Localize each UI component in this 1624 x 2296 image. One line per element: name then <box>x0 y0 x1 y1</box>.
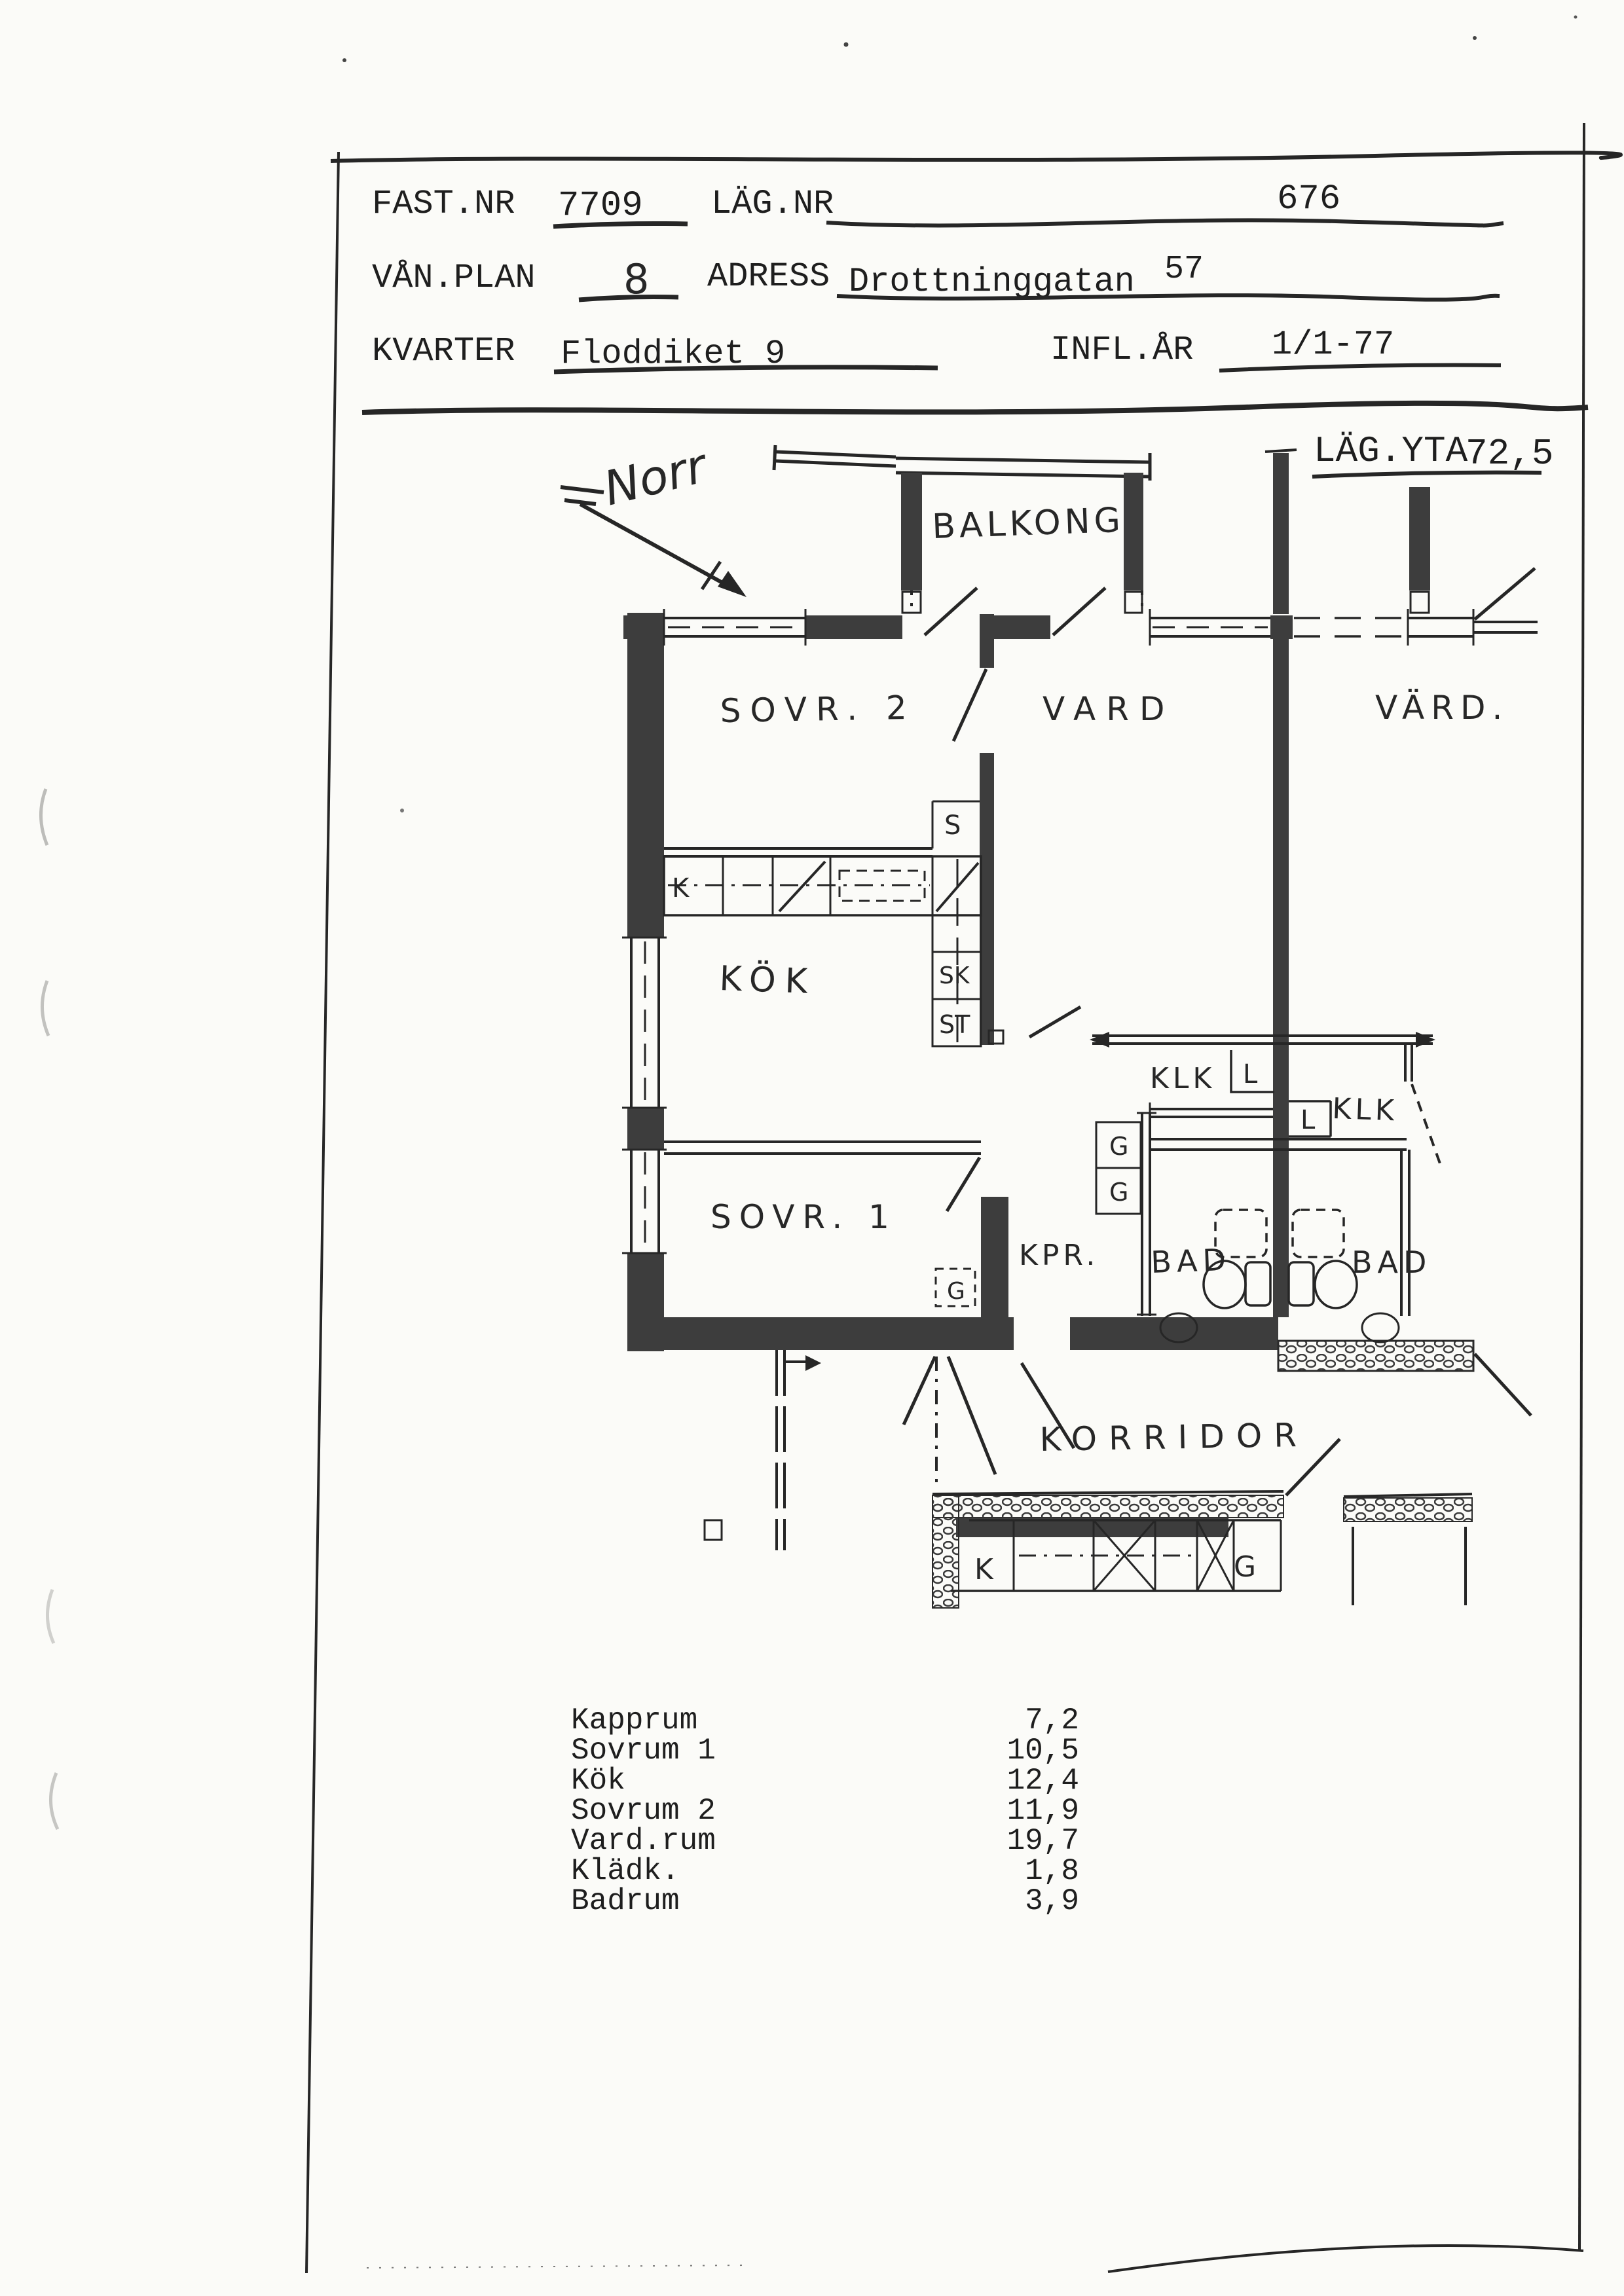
table-row-label: Badrum <box>571 1884 680 1918</box>
area-table: Kapprum 7,2 Sovrum 1 10,5 Kök 12,4 Sovru… <box>571 1704 1079 1918</box>
scanned-floorplan-page: FAST.NR 7709 LÄG.NR 676 VÅN.PLAN 8 ADRES… <box>0 0 1624 2296</box>
party-wall-post <box>1273 453 1289 614</box>
label-g-sovr1: G <box>947 1278 965 1305</box>
lag-nr-label: LÄG.NR <box>711 185 834 223</box>
table-row-label: Sovrum 1 <box>571 1734 716 1768</box>
area-note: LÄG.YTA 72,5 <box>1312 430 1553 477</box>
table-row-label: Kök <box>571 1764 625 1798</box>
table-row-label: Sovrum 2 <box>571 1794 716 1828</box>
table-row-value: 7,2 <box>1025 1704 1079 1738</box>
room-labels: SOVR. 2 VARD VÄRD. KÖK SOVR. 1 KPR. BAD … <box>672 689 1509 1586</box>
table-row-value: 3,9 <box>1025 1884 1079 1918</box>
label-sovr2: SOVR. 2 <box>720 689 916 730</box>
label-st: ST <box>939 1010 970 1039</box>
table-row-value: 19,7 <box>1007 1824 1079 1858</box>
table-row-label: Vard.rum <box>571 1824 716 1858</box>
table-row-label: Kapprum <box>571 1704 697 1738</box>
balcony-post <box>1409 487 1430 591</box>
label-l-right: L <box>1301 1105 1316 1135</box>
label-kpr: KPR. <box>1019 1239 1099 1272</box>
label-g-nere: G <box>1234 1550 1256 1584</box>
north-label: Norr <box>599 437 714 517</box>
floorplan-drawing: FAST.NR 7709 LÄG.NR 676 VÅN.PLAN 8 ADRES… <box>0 0 1624 2296</box>
label-k-nere: K <box>974 1553 994 1586</box>
fast-nr-value: 7709 <box>558 186 643 226</box>
label-k-bank: K <box>672 873 690 903</box>
table-row-value: 10,5 <box>1007 1734 1079 1768</box>
table-row-value: 12,4 <box>1007 1764 1079 1798</box>
kitchen-fixtures <box>664 801 981 1046</box>
header-form: FAST.NR 7709 LÄG.NR 676 VÅN.PLAN 8 ADRES… <box>372 179 1504 373</box>
infl-ar-value: 1/1-77 <box>1272 325 1394 364</box>
label-kok: KÖK <box>719 958 817 1002</box>
label-vard: VARD <box>1043 690 1175 728</box>
label-korridor: KORRIDOR <box>1039 1416 1308 1459</box>
corridor <box>705 1350 1472 1608</box>
fast-nr-label: FAST.NR <box>372 185 515 223</box>
adress-number: 57 <box>1164 251 1204 288</box>
label-l-left: L <box>1243 1059 1258 1089</box>
lag-yta-value: 72,5 <box>1466 433 1553 475</box>
balcony-post <box>1124 473 1143 591</box>
label-klk-left: KLK <box>1150 1062 1215 1095</box>
table-row-value: 1,8 <box>1025 1854 1079 1888</box>
label-s: S <box>944 811 961 841</box>
label-sovr1: SOVR. 1 <box>710 1198 897 1236</box>
lag-yta-label: LÄG.YTA <box>1314 430 1468 472</box>
label-balkong: BALKONG <box>931 501 1125 547</box>
infl-ar-label: INFL.ÅR <box>1050 331 1193 369</box>
balcony-post <box>901 473 922 591</box>
label-g1: G <box>1109 1132 1128 1161</box>
label-g2: G <box>1109 1178 1128 1207</box>
adress-label: ADRESS <box>707 257 830 296</box>
label-vard-grann: VÄRD. <box>1375 689 1509 727</box>
table-row-label: Klädk. <box>571 1854 680 1888</box>
label-sk: SK <box>939 962 970 989</box>
table-row-value: 11,9 <box>1007 1794 1079 1828</box>
lag-nr-value: 676 <box>1277 179 1340 219</box>
north-arrow: Norr <box>561 437 747 597</box>
van-plan-label: VÅN.PLAN <box>372 259 536 297</box>
label-klk-right: KLK <box>1332 1092 1399 1127</box>
label-bad-left: BAD <box>1150 1242 1231 1280</box>
label-bad-right: BAD <box>1352 1245 1431 1280</box>
kvarter-label: KVARTER <box>372 332 515 371</box>
party-wall <box>1273 615 1289 1317</box>
